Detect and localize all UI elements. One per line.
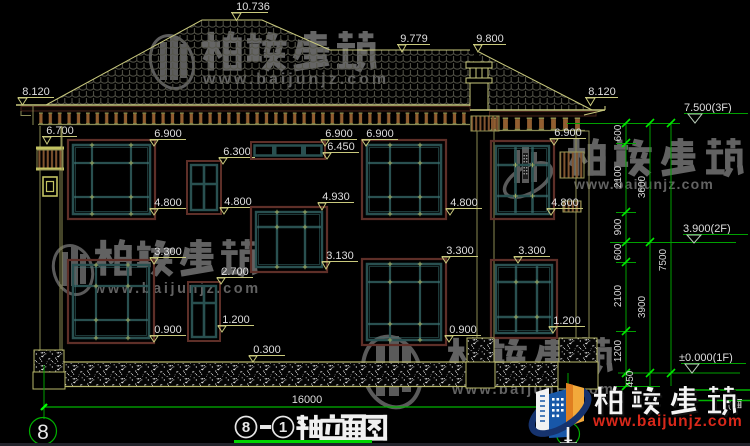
svg-text:8: 8 [242,419,250,436]
svg-text:6.900: 6.900 [325,128,353,140]
svg-text:600: 600 [613,243,624,260]
svg-text:6.900: 6.900 [554,127,582,139]
svg-text:6.300: 6.300 [223,146,251,158]
svg-text:1.200: 1.200 [553,315,581,327]
svg-text:16000: 16000 [292,394,323,406]
svg-text:600: 600 [613,124,624,141]
svg-text:7500: 7500 [658,248,669,271]
svg-text:3.900(2F): 3.900(2F) [683,223,731,235]
svg-text:8: 8 [37,421,49,444]
svg-text:7.500(3F): 7.500(3F) [684,102,732,114]
svg-text:4.800: 4.800 [224,196,252,208]
svg-text:1.200: 1.200 [222,314,250,326]
svg-text:4.930: 4.930 [322,191,350,203]
svg-text:2.700: 2.700 [221,266,249,278]
svg-text:3.300: 3.300 [518,245,546,257]
svg-text:9.779: 9.779 [400,33,428,45]
svg-text:6.900: 6.900 [366,128,394,140]
svg-text:3900: 3900 [637,295,648,318]
svg-text:2100: 2100 [613,165,624,188]
svg-text:8.120: 8.120 [588,86,616,98]
svg-text:900: 900 [613,218,624,235]
svg-text:4.800: 4.800 [551,197,579,209]
svg-text:www.baijunjz.com: www.baijunjz.com [93,281,261,297]
svg-text:www.baijunjz.com: www.baijunjz.com [592,413,743,430]
svg-text:3600: 3600 [637,175,648,198]
svg-text:0.300: 0.300 [253,344,281,356]
svg-text:0.900: 0.900 [154,324,182,336]
svg-text:3.130: 3.130 [326,250,354,262]
svg-text:10.736: 10.736 [236,1,270,13]
svg-text:1: 1 [279,419,287,436]
svg-text:3.300: 3.300 [154,246,182,258]
svg-text:4.800: 4.800 [154,197,182,209]
svg-text:4.800: 4.800 [450,197,478,209]
svg-text:0.900: 0.900 [449,324,477,336]
svg-text:2100: 2100 [613,284,624,307]
svg-text:9.800: 9.800 [476,33,504,45]
svg-text:3.300: 3.300 [446,245,474,257]
svg-text:6.700: 6.700 [46,125,74,137]
svg-text:1200: 1200 [613,339,624,362]
svg-text:6.900: 6.900 [154,128,182,140]
svg-text:±0.000(1F): ±0.000(1F) [679,352,733,364]
svg-text:8.120: 8.120 [22,86,50,98]
svg-text:450: 450 [625,370,636,387]
svg-text:6.450: 6.450 [327,141,355,153]
